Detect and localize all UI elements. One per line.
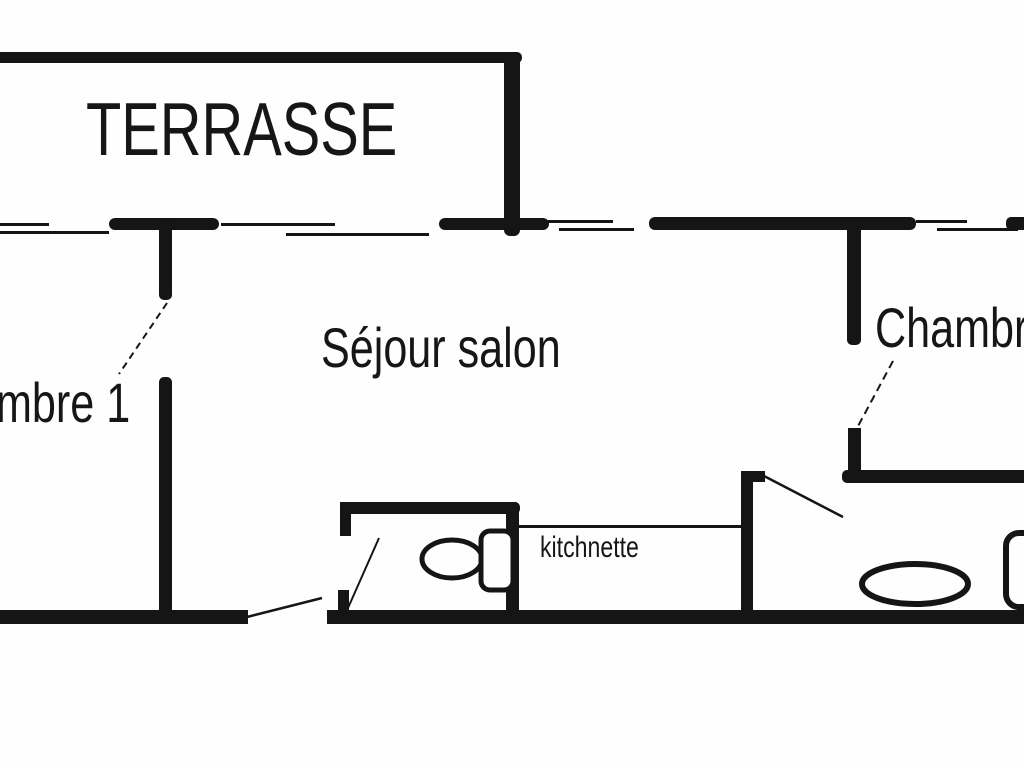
washbasin-icon: [1006, 533, 1024, 607]
bathroom-left-wall-stub: [741, 471, 765, 482]
bathroom-left-wall: [741, 471, 753, 620]
top-wall-segment-3: [649, 217, 916, 230]
window-line-7: [916, 220, 967, 223]
terrasse-label: TERRASSE: [86, 92, 397, 167]
floor-plan-page: TERRASSE Séjour salon mbre 1 Chambr kitc…: [0, 0, 1024, 768]
chambre1-door-swing: [119, 303, 167, 374]
bathtub-icon: [862, 564, 968, 604]
chambre1-label: mbre 1: [0, 375, 130, 431]
toilet-icon: [422, 531, 513, 590]
window-line-5: [547, 220, 613, 223]
terrasse-right-wall: [504, 52, 520, 236]
bottom-wall-right: [327, 610, 1024, 624]
wc-door-swing: [348, 538, 379, 608]
sejour-salon-label: Séjour salon: [321, 320, 561, 376]
bathroom-door-swing: [764, 476, 843, 517]
entry-door-swing: [247, 598, 322, 617]
window-line-2: [0, 231, 109, 234]
window-line-4: [286, 233, 429, 236]
top-wall-segment-2: [439, 218, 549, 230]
window-line-6: [559, 228, 634, 231]
chambre1-wall-lower: [159, 377, 172, 619]
chambre2-bottom-wall: [842, 470, 1024, 483]
chambre2-wall-upper: [847, 219, 861, 345]
chambre2-door-swing: [857, 361, 893, 428]
kitchnette-label: kitchnette: [540, 533, 639, 563]
wc-top-wall: [340, 502, 520, 514]
kitchnette-counter-line: [518, 525, 745, 528]
chambre1-wall-upper: [159, 220, 172, 300]
bottom-wall-left: [0, 610, 248, 624]
window-line-3: [221, 223, 335, 226]
terrasse-top-wall: [0, 52, 522, 63]
window-line-1: [0, 223, 49, 226]
wc-left-wall-lower: [338, 590, 349, 620]
chambre2-label: Chambr: [875, 300, 1024, 356]
wc-left-wall-upper: [340, 502, 351, 536]
window-line-8: [937, 228, 1018, 231]
